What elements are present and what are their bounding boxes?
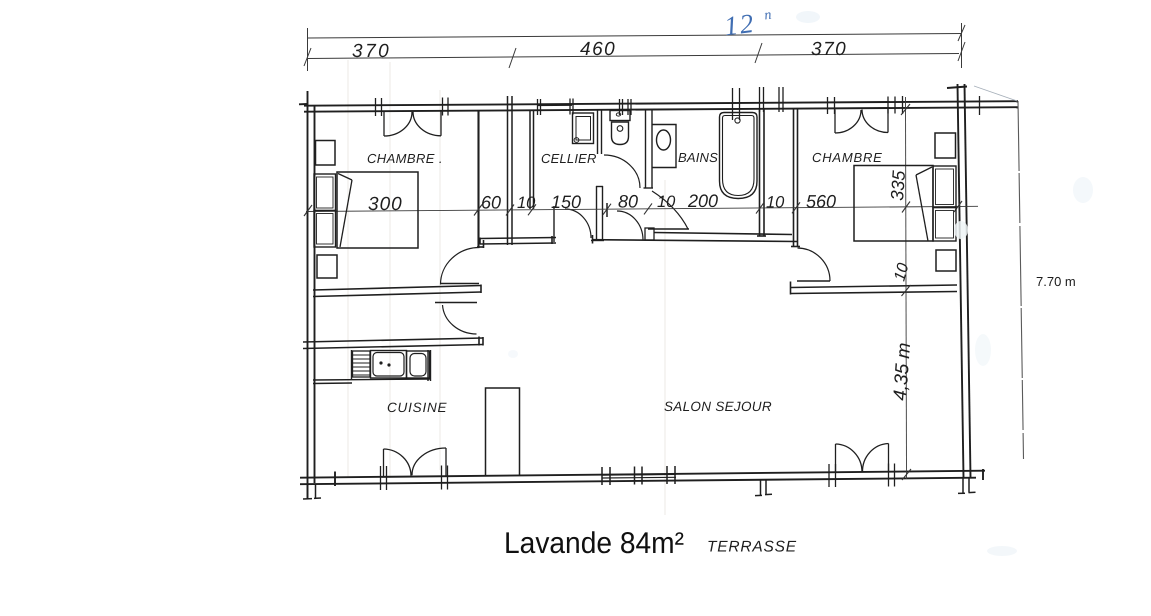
svg-text:n: n (764, 8, 773, 24)
svg-text:370: 370 (811, 39, 847, 60)
svg-text:CELLIER: CELLIER (541, 151, 597, 166)
svg-text:80: 80 (618, 192, 638, 212)
svg-text:370: 370 (352, 41, 391, 62)
svg-text:10: 10 (891, 261, 912, 283)
svg-text:7.70 m: 7.70 m (1036, 274, 1076, 289)
svg-text:12: 12 (723, 8, 757, 42)
svg-text:10: 10 (766, 194, 785, 212)
svg-text:SALON SEJOUR: SALON SEJOUR (664, 399, 772, 414)
svg-text:CUISINE: CUISINE (387, 400, 448, 415)
svg-text:150: 150 (551, 192, 581, 212)
svg-text:TERRASSE: TERRASSE (707, 539, 797, 556)
svg-text:CHAMBRE .: CHAMBRE . (367, 151, 443, 166)
svg-text:560: 560 (806, 192, 836, 212)
svg-text:Lavande 84m²: Lavande 84m² (504, 527, 684, 560)
svg-text:200: 200 (687, 191, 718, 211)
svg-text:CHAMBRE: CHAMBRE (812, 150, 883, 165)
svg-text:460: 460 (580, 39, 616, 60)
svg-text:335: 335 (887, 169, 909, 201)
svg-text:300: 300 (368, 194, 403, 215)
svg-text:4,35 m: 4,35 m (890, 342, 915, 401)
svg-text:10: 10 (657, 193, 676, 211)
svg-text:60: 60 (481, 193, 501, 213)
svg-text:10: 10 (517, 194, 536, 212)
svg-text:BAINS: BAINS (678, 150, 718, 165)
